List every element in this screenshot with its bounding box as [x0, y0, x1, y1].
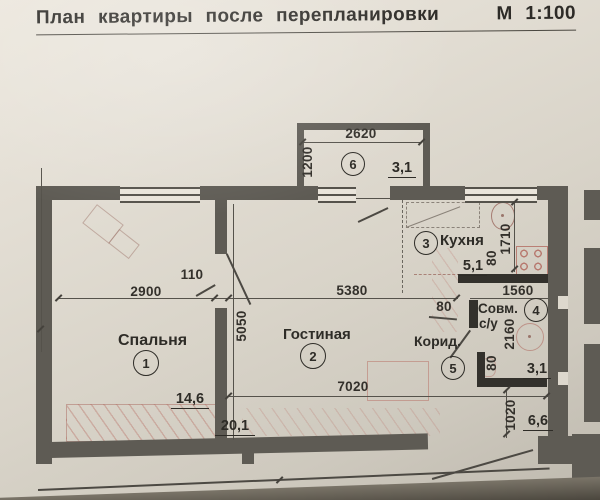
dim-bathroom-width: 1560	[497, 284, 539, 298]
room-number-bedroom: 1	[133, 350, 159, 376]
room-area-kitchen: 5,1	[459, 259, 487, 276]
room-area-balcony: 3,1	[388, 161, 416, 178]
balcony-dim-line	[302, 142, 422, 143]
floor-plan-photo: План квартиры после перепланировки М 1:1…	[0, 0, 600, 500]
bed-sketch	[66, 404, 218, 442]
living-floor-sketch	[242, 408, 440, 436]
window-balcony	[318, 187, 356, 203]
drawing-title: План квартиры после перепланировки	[36, 4, 439, 30]
room-label-corridor: Корид.	[414, 333, 461, 349]
drawing-scale: М 1:100	[496, 3, 576, 26]
window-bedroom	[120, 187, 200, 203]
stairwell-wall-fragment	[584, 344, 600, 422]
bathroom-door-jamb	[469, 300, 478, 328]
kitchen-counter-sketch	[406, 202, 480, 228]
room-area-living: 20,1	[215, 419, 255, 436]
dim-total-width: 7020	[331, 380, 375, 394]
sink-drain-dot	[501, 214, 504, 217]
stairwell-wall-fragment	[584, 190, 600, 220]
room-label-bathroom-line1: Совм.	[478, 301, 518, 316]
room-area-entry: 6,6	[523, 414, 553, 431]
balcony-door-swing	[358, 207, 389, 222]
window-kitchen	[465, 187, 537, 203]
room-label-kitchen: Кухня	[440, 232, 484, 249]
room-number-balcony: 6	[341, 152, 365, 176]
dim-bathroom-wall: 80	[485, 351, 499, 375]
dim-kitchen-wall: 80	[485, 246, 499, 270]
wall-right-notch	[558, 296, 568, 309]
dim-living-depth: 5050	[235, 306, 249, 346]
dim-line-total-width	[228, 396, 548, 397]
dining-table-sketch	[367, 361, 429, 401]
room-label-bedroom: Спальня	[118, 332, 187, 350]
dim-110-leader	[196, 284, 216, 296]
room-number-corridor: 5	[441, 356, 465, 380]
entry-door-swing	[432, 449, 533, 479]
dim-balcony-width: 2620	[337, 127, 385, 141]
dim-partition-thickness: 110	[177, 268, 207, 282]
wall-top-2	[200, 186, 318, 200]
balcony-wall-right	[423, 123, 430, 186]
washing-machine-icon	[516, 323, 544, 351]
dim-balcony-depth: 1200	[301, 142, 315, 182]
dim-bathroom-depth: 2160	[503, 314, 517, 354]
dim-corridor-wall: 80	[431, 300, 457, 314]
partition-bedroom-upper	[215, 200, 227, 254]
dim-entry-width: 1020	[504, 395, 518, 435]
dim-bedroom-width: 2900	[122, 285, 170, 299]
washer-center-dot	[528, 335, 531, 338]
wall-right-notch	[558, 372, 568, 385]
room-area-bathroom: 3,1	[523, 362, 551, 379]
stove-icon	[516, 246, 548, 276]
balcony-door-threshold	[356, 198, 390, 199]
drawing-title-row: План квартиры после перепланировки М 1:1…	[36, 3, 576, 36]
dim-kitchen-depth: 1710	[499, 219, 513, 259]
dim-line-kitchen-depth	[514, 202, 515, 272]
dim-living-width: 5380	[330, 284, 374, 298]
kitchen-boundary-dashed	[402, 200, 403, 293]
room-number-kitchen: 3	[414, 231, 438, 255]
bathroom-wall-bottom	[477, 378, 547, 387]
stairwell-wall-fragment	[584, 248, 600, 324]
room-number-bathroom: 4	[524, 298, 548, 322]
room-number-living: 2	[300, 343, 326, 369]
room-label-living: Гостиная	[283, 326, 351, 343]
wall-top-3	[390, 186, 465, 200]
dim-line-rooms-width	[58, 298, 458, 299]
wall-bottom-stub	[242, 452, 254, 464]
room-area-bedroom: 14,6	[171, 392, 209, 409]
room-label-bathroom-line2: с/у	[479, 316, 498, 331]
